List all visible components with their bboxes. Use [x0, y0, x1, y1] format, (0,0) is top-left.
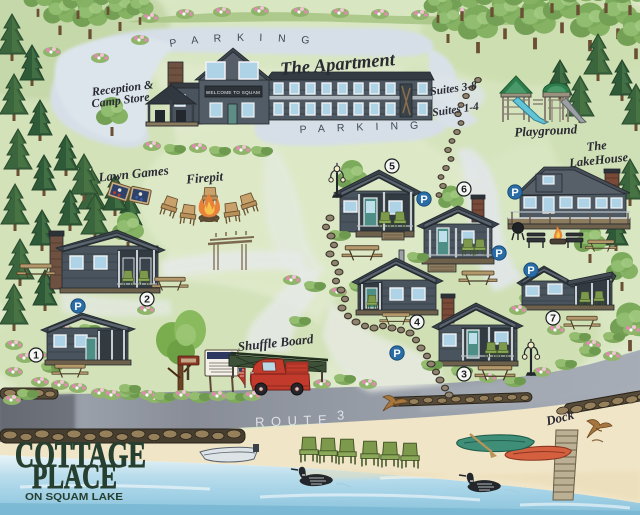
- svg-text:2: 2: [144, 293, 150, 305]
- svg-text:5: 5: [389, 160, 395, 172]
- svg-text:3: 3: [461, 368, 467, 380]
- svg-text:7: 7: [550, 312, 556, 324]
- svg-text:3: 3: [337, 407, 345, 422]
- svg-text:4: 4: [414, 316, 420, 328]
- svg-text:ON SQUAM LAKE: ON SQUAM LAKE: [25, 491, 123, 503]
- svg-text:ROUTE: ROUTE: [255, 412, 333, 430]
- svg-text:WELCOME TO SQUAM: WELCOME TO SQUAM: [206, 90, 260, 95]
- svg-text:1: 1: [33, 349, 39, 361]
- svg-text:6: 6: [461, 183, 467, 195]
